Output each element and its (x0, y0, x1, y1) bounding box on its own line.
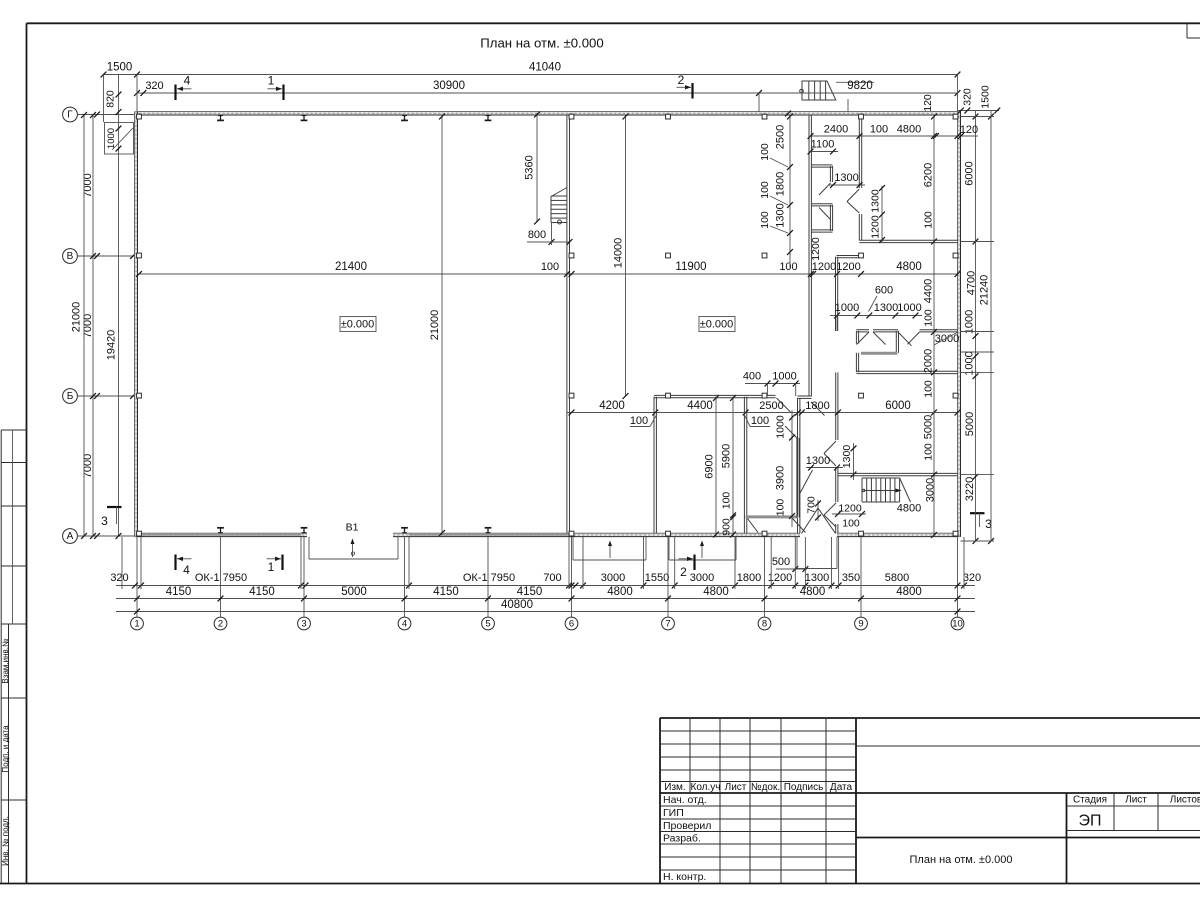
svg-text:6900: 6900 (704, 454, 716, 478)
svg-text:Стадия: Стадия (1073, 795, 1107, 806)
svg-text:Подпись: Подпись (784, 782, 824, 793)
svg-text:2400: 2400 (824, 124, 848, 136)
svg-text:1300: 1300 (841, 445, 853, 469)
svg-text:1500: 1500 (980, 85, 992, 109)
svg-text:4400: 4400 (687, 400, 713, 412)
svg-text:2: 2 (680, 565, 687, 579)
svg-text:±0.000: ±0.000 (700, 319, 734, 331)
svg-text:1200: 1200 (812, 261, 836, 273)
svg-text:100: 100 (759, 211, 771, 229)
svg-text:№док.: №док. (751, 782, 780, 793)
svg-text:100: 100 (775, 499, 787, 517)
svg-text:1500: 1500 (107, 62, 133, 74)
svg-text:40800: 40800 (501, 599, 533, 611)
svg-text:5900: 5900 (721, 444, 733, 468)
svg-text:1800: 1800 (737, 572, 761, 584)
svg-text:1300: 1300 (874, 302, 898, 314)
svg-text:4800: 4800 (800, 586, 826, 598)
svg-text:Лист: Лист (725, 782, 747, 793)
svg-text:План на отм. ±0.000: План на отм. ±0.000 (910, 854, 1013, 866)
svg-text:4150: 4150 (249, 586, 275, 598)
svg-text:900: 900 (721, 518, 733, 536)
svg-text:1550: 1550 (645, 572, 669, 584)
svg-text:Изм.: Изм. (664, 782, 685, 793)
svg-text:1300: 1300 (775, 203, 787, 227)
svg-text:5360: 5360 (524, 155, 536, 179)
svg-text:А: А (67, 531, 74, 542)
svg-text:4800: 4800 (896, 261, 922, 273)
svg-text:4700: 4700 (966, 271, 978, 295)
svg-text:41040: 41040 (529, 62, 561, 74)
svg-text:4800: 4800 (703, 586, 729, 598)
svg-text:1200: 1200 (810, 237, 822, 261)
svg-text:1: 1 (268, 560, 275, 574)
svg-text:Листов: Листов (1170, 795, 1200, 806)
svg-text:2500: 2500 (759, 400, 783, 412)
svg-text:4400: 4400 (923, 279, 935, 303)
svg-text:320: 320 (145, 80, 163, 92)
svg-text:2500: 2500 (775, 125, 787, 149)
svg-text:8: 8 (762, 619, 767, 630)
svg-text:В: В (67, 251, 74, 262)
svg-text:21240: 21240 (979, 275, 991, 306)
svg-text:2: 2 (678, 73, 685, 87)
svg-text:Проверил: Проверил (663, 820, 711, 832)
svg-text:6200: 6200 (923, 163, 935, 187)
svg-text:Разраб.: Разраб. (663, 833, 701, 845)
svg-text:4800: 4800 (897, 503, 921, 515)
svg-text:100: 100 (751, 415, 769, 427)
svg-text:1300: 1300 (870, 189, 882, 213)
svg-text:3000: 3000 (601, 572, 625, 584)
svg-text:30900: 30900 (433, 80, 465, 92)
svg-text:1000: 1000 (897, 302, 921, 314)
svg-text:5800: 5800 (885, 572, 909, 584)
svg-text:320: 320 (110, 572, 128, 584)
svg-text:100: 100 (923, 380, 935, 398)
svg-text:700: 700 (806, 496, 818, 514)
svg-text:1300: 1300 (806, 455, 830, 467)
svg-text:21400: 21400 (335, 261, 367, 273)
svg-text:ГИП: ГИП (663, 807, 684, 819)
svg-text:11900: 11900 (675, 261, 706, 273)
svg-text:9820: 9820 (847, 80, 873, 92)
svg-text:1000: 1000 (775, 415, 787, 439)
svg-text:1800: 1800 (805, 400, 829, 412)
svg-text:1200: 1200 (838, 503, 862, 515)
svg-text:100: 100 (923, 211, 935, 229)
svg-text:6000: 6000 (964, 161, 976, 185)
svg-text:1000: 1000 (835, 302, 859, 314)
svg-text:21000: 21000 (71, 302, 83, 333)
svg-text:4800: 4800 (896, 586, 922, 598)
svg-text:3220: 3220 (964, 477, 976, 501)
svg-text:1100: 1100 (811, 139, 835, 151)
svg-text:100: 100 (759, 143, 771, 161)
svg-text:19420: 19420 (106, 330, 118, 361)
svg-text:Дата: Дата (830, 782, 853, 793)
svg-text:14000: 14000 (613, 238, 625, 269)
svg-text:100: 100 (630, 415, 648, 427)
svg-text:600: 600 (875, 285, 893, 297)
svg-text:План на отм. ±0.000: План на отм. ±0.000 (480, 36, 603, 51)
svg-text:100: 100 (923, 443, 935, 461)
svg-text:ОК-1 7950: ОК-1 7950 (195, 572, 247, 584)
svg-text:Кол.уч: Кол.уч (691, 782, 721, 793)
svg-text:3: 3 (101, 514, 108, 528)
svg-text:350: 350 (842, 572, 860, 584)
svg-text:800: 800 (528, 229, 546, 241)
svg-text:4150: 4150 (517, 586, 543, 598)
svg-text:1000: 1000 (964, 310, 976, 334)
svg-text:4150: 4150 (433, 586, 459, 598)
svg-text:100: 100 (721, 492, 733, 510)
svg-text:ОК-1 7950: ОК-1 7950 (463, 572, 515, 584)
svg-text:3: 3 (301, 619, 306, 630)
svg-text:7: 7 (665, 619, 670, 630)
svg-text:1300: 1300 (805, 572, 829, 584)
svg-text:100: 100 (541, 261, 559, 273)
svg-text:4: 4 (183, 563, 190, 577)
svg-text:Н. контр.: Н. контр. (663, 871, 706, 883)
svg-text:3000: 3000 (925, 478, 937, 502)
svg-text:ЭП: ЭП (1079, 813, 1102, 830)
svg-text:700: 700 (543, 572, 561, 584)
svg-text:100: 100 (870, 124, 888, 136)
svg-text:1000: 1000 (106, 128, 117, 149)
svg-text:1800: 1800 (775, 172, 787, 196)
svg-text:Г: Г (67, 110, 73, 121)
svg-text:5000: 5000 (923, 415, 935, 439)
svg-text:120: 120 (922, 94, 934, 112)
svg-text:1: 1 (134, 619, 139, 630)
svg-text:4800: 4800 (897, 124, 921, 136)
svg-text:3900: 3900 (775, 466, 787, 490)
svg-text:Б: Б (67, 391, 74, 402)
svg-text:21000: 21000 (429, 310, 441, 341)
svg-text:500: 500 (772, 556, 790, 568)
svg-text:Взам.инв.№: Взам.инв.№ (1, 638, 10, 684)
svg-text:4150: 4150 (166, 586, 192, 598)
svg-text:Лист: Лист (1125, 795, 1147, 806)
svg-text:Нач. отд.: Нач. отд. (663, 794, 707, 806)
svg-text:400: 400 (743, 371, 761, 383)
svg-text:1200: 1200 (870, 215, 882, 239)
svg-text:Инв. № подл.: Инв. № подл. (1, 816, 10, 866)
svg-text:100: 100 (779, 261, 797, 273)
svg-text:4: 4 (402, 619, 407, 630)
svg-text:3000: 3000 (690, 572, 714, 584)
svg-text:2: 2 (218, 619, 223, 630)
svg-text:5: 5 (485, 619, 490, 630)
svg-text:В1: В1 (346, 522, 359, 534)
svg-text:6: 6 (569, 619, 574, 630)
svg-text:1300: 1300 (834, 172, 858, 184)
svg-text:320: 320 (963, 572, 981, 584)
svg-text:3000: 3000 (935, 333, 959, 345)
svg-text:100: 100 (759, 181, 771, 199)
svg-text:320: 320 (962, 88, 974, 106)
svg-text:6000: 6000 (885, 400, 911, 412)
svg-text:5000: 5000 (964, 412, 976, 436)
svg-text:1200: 1200 (836, 261, 860, 273)
svg-text:4: 4 (184, 74, 191, 88)
svg-text:4800: 4800 (607, 586, 633, 598)
svg-text:10: 10 (952, 619, 963, 630)
svg-text:Подп. и дата: Подп. и дата (1, 725, 10, 773)
svg-text:1000: 1000 (772, 371, 796, 383)
svg-text:820: 820 (105, 90, 117, 108)
svg-text:4200: 4200 (599, 400, 625, 412)
svg-text:5000: 5000 (341, 586, 367, 598)
svg-text:2000: 2000 (923, 349, 935, 373)
svg-text:100: 100 (923, 309, 935, 327)
svg-text:1: 1 (268, 74, 275, 88)
svg-text:9: 9 (858, 619, 863, 630)
svg-text:±0.000: ±0.000 (341, 319, 375, 331)
svg-text:100: 100 (842, 518, 860, 530)
